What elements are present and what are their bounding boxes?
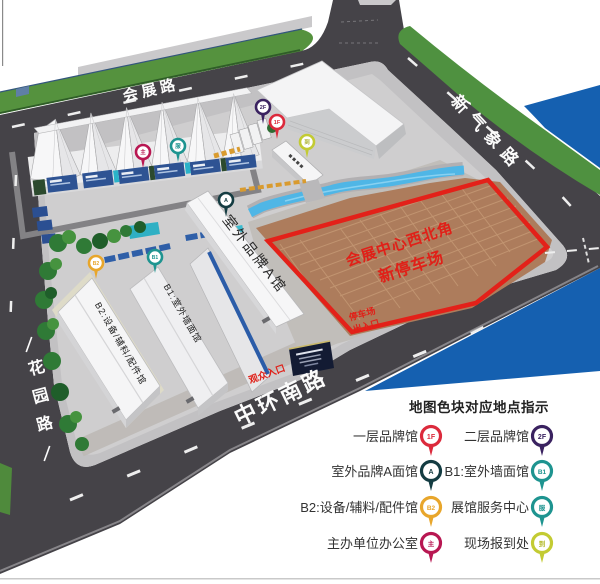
svg-text:主办单位办公室: 主办单位办公室 [327,536,418,551]
svg-text:服: 服 [175,142,181,150]
svg-text:B2: B2 [93,261,100,267]
svg-text:到: 到 [304,138,310,146]
svg-text:2F: 2F [260,105,267,111]
svg-text:2F: 2F [538,434,547,441]
svg-text:室外品牌A面馆: 室外品牌A面馆 [331,464,418,479]
svg-text:现场报到处: 现场报到处 [464,536,529,551]
svg-text:展馆服务中心: 展馆服务中心 [451,500,529,515]
svg-text:二层品牌馆: 二层品牌馆 [464,429,529,444]
svg-text:A: A [428,469,433,476]
svg-text:B2: B2 [427,505,436,512]
svg-text:到: 到 [539,539,546,548]
svg-text:服: 服 [539,503,546,512]
svg-text:B1:室外墙面馆: B1:室外墙面馆 [444,464,529,479]
svg-text:1F: 1F [427,434,436,441]
svg-text:主: 主 [140,148,146,156]
svg-text:B1: B1 [152,255,159,261]
svg-text:地图色块对应地点指示: 地图色块对应地点指示 [409,399,549,415]
svg-text:一层品牌馆: 一层品牌馆 [353,429,418,444]
svg-text:B2:设备/辅料/配件馆: B2:设备/辅料/配件馆 [300,500,418,515]
svg-text:1F: 1F [274,120,281,126]
svg-text:B1: B1 [538,469,547,476]
svg-text:主: 主 [428,539,435,548]
svg-text:A: A [224,198,228,204]
